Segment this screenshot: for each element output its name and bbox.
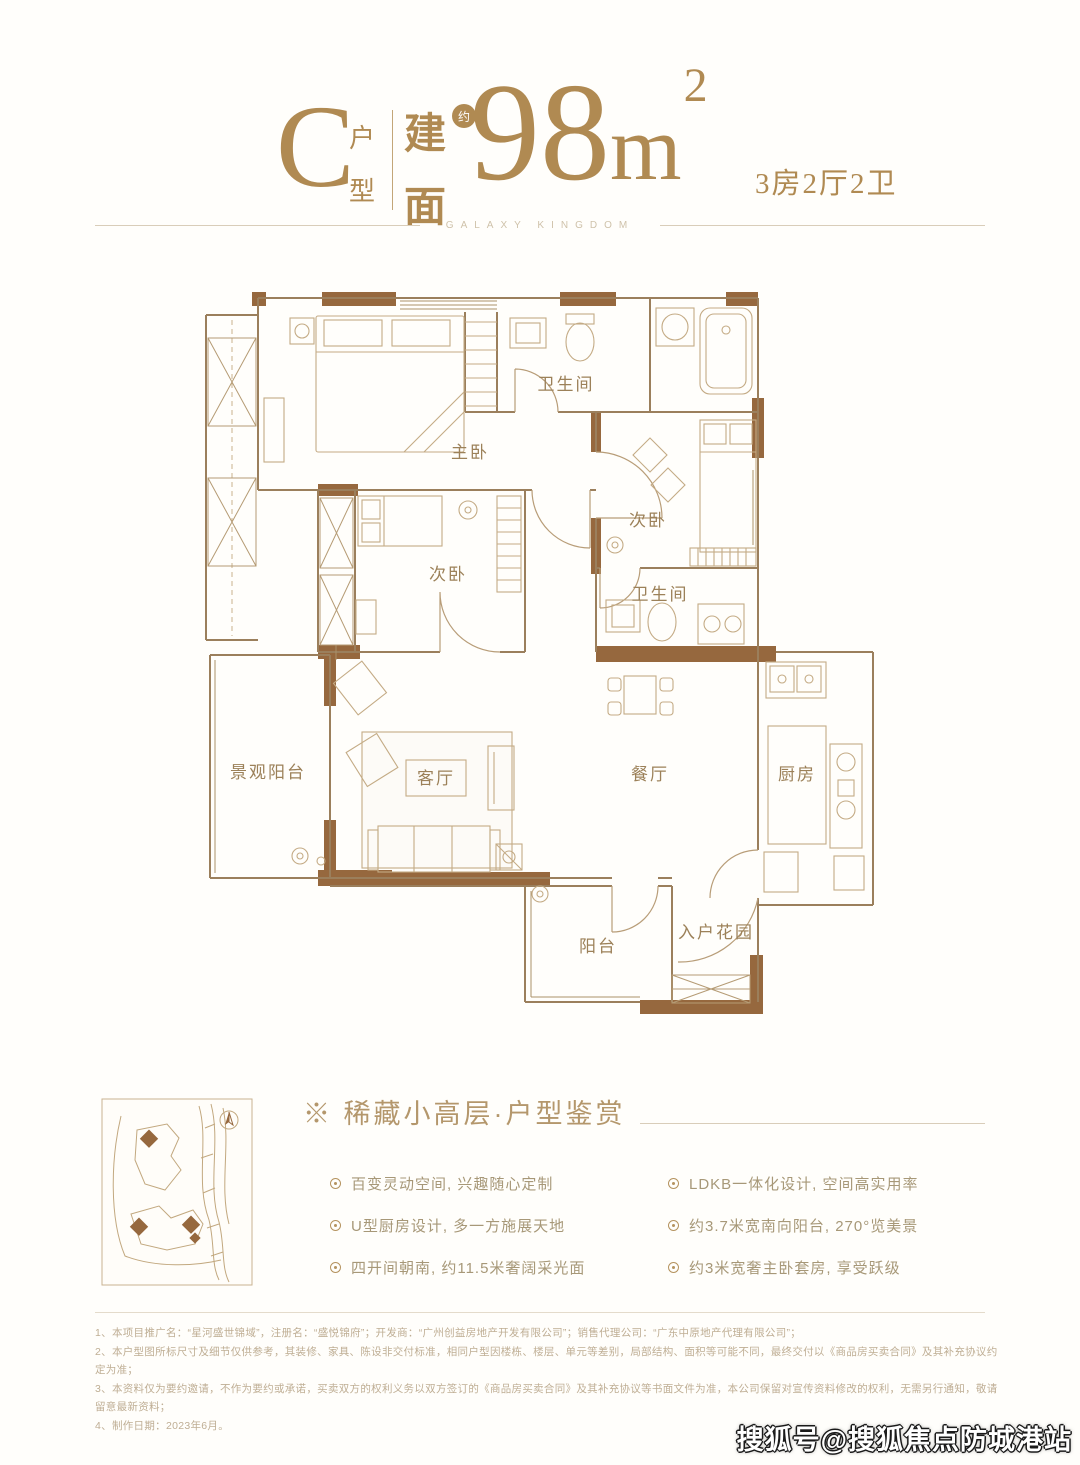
disclaimer-line: 1、本项目推广名：“星河盛世锦域”，注册名：“盛悦锦府”；开发商：“广州创益房地… <box>95 1324 1000 1343</box>
room-label-kitchen: 厨房 <box>778 765 816 784</box>
area-unit: m <box>610 97 682 199</box>
room-label-bathroom-right: 卫生间 <box>632 585 689 604</box>
bay-window-boxes <box>208 338 750 1003</box>
unit-type-label: 户 型 <box>349 118 375 208</box>
features-heading: ※ 稀藏小高层·户型鉴赏 <box>303 1092 626 1131</box>
bullet-icon <box>668 1262 679 1273</box>
room-label-living-room: 客厅 <box>417 769 455 788</box>
watermark: 搜狐号@搜狐焦点防城港站 <box>737 1418 1072 1457</box>
room-label-bathroom-top: 卫生间 <box>538 375 595 394</box>
feature-text: 百变灵动空间, 兴趣随心定制 <box>351 1173 553 1194</box>
room-label-dining-room: 餐厅 <box>631 765 669 784</box>
site-map-svg <box>101 1098 253 1286</box>
room-label-bedroom-right: 次卧 <box>629 511 667 530</box>
header-divider <box>392 110 393 210</box>
unit-type-letter: C <box>276 88 355 206</box>
site-map-thumbnail <box>101 1098 253 1286</box>
feature-text: 四开间朝南, 约11.5米奢阔采光面 <box>351 1257 585 1278</box>
area-label-char: 建 <box>404 100 446 161</box>
area-superscript: 2 <box>684 59 708 112</box>
header: C 户 型 建 面 约 98m2 3房2厅2卫 GALAXY KINGDOM <box>0 0 1080 250</box>
divider-line <box>95 225 420 226</box>
feature-text: U型厨房设计, 多一方施展天地 <box>351 1215 565 1236</box>
features-heading-row: ※ 稀藏小高层·户型鉴赏 <box>303 1092 985 1131</box>
brand-text: GALAXY KINGDOM <box>420 220 660 231</box>
room-label-bedroom-left: 次卧 <box>429 565 467 584</box>
area-label: 建 面 <box>404 100 446 234</box>
feature-item: 百变灵动空间, 兴趣随心定制 <box>330 1162 668 1204</box>
bullet-icon <box>330 1220 341 1231</box>
unit-type-char: 型 <box>349 171 375 208</box>
disclaimer-line: 3、本资料仅为要约邀请，不作为要约或承诺，买卖双方的权利义务以双方签订的《商品房… <box>95 1380 1000 1417</box>
room-label-entry-garden: 入户花园 <box>678 923 754 942</box>
room-labels: 主卧 卫生间 次卧 卫生间 次卧 景观阳台 客厅 餐厅 厨房 阳台 入户花园 <box>230 375 816 956</box>
bullet-icon <box>668 1220 679 1231</box>
bullet-icon <box>330 1262 341 1273</box>
room-label-balcony: 阳台 <box>579 937 617 956</box>
feature-item: 约3米宽奢主卧套房, 享受跃级 <box>668 1246 1010 1288</box>
room-spec: 3房2厅2卫 <box>755 160 898 202</box>
site-map-border <box>102 1099 252 1285</box>
feature-item: 约3.7米宽南向阳台, 270°览美景 <box>668 1204 1010 1246</box>
bullet-icon <box>330 1178 341 1189</box>
disclaimer-rule <box>95 1312 985 1313</box>
feature-text: LDKB一体化设计, 空间高实用率 <box>689 1173 919 1194</box>
brand-divider: GALAXY KINGDOM <box>95 220 985 231</box>
feature-text: 约3米宽奢主卧套房, 享受跃级 <box>689 1257 901 1278</box>
disclaimer-line: 2、本户型图所标尺寸及细节仅供参考，其装修、家具、陈设非交付标准，相同户型因楼栋… <box>95 1343 1000 1380</box>
heading-rule <box>640 1123 986 1124</box>
feature-item: 四开间朝南, 约11.5米奢阔采光面 <box>330 1246 668 1288</box>
feature-item: U型厨房设计, 多一方施展天地 <box>330 1204 668 1246</box>
area-number: 98 <box>470 55 610 210</box>
feature-item: LDKB一体化设计, 空间高实用率 <box>668 1162 1010 1204</box>
bullet-icon <box>668 1178 679 1189</box>
floor-plan-svg: 主卧 卫生间 次卧 卫生间 次卧 景观阳台 客厅 餐厅 厨房 阳台 入户花园 <box>0 280 1080 1050</box>
room-label-master-bedroom: 主卧 <box>451 443 489 462</box>
area-value: 98m2 <box>470 62 708 203</box>
divider-line <box>660 225 985 226</box>
features-list: 百变灵动空间, 兴趣随心定制 LDKB一体化设计, 空间高实用率 U型厨房设计,… <box>330 1162 1010 1288</box>
feature-text: 约3.7米宽南向阳台, 270°览美景 <box>689 1215 918 1236</box>
unit-type-char: 户 <box>349 118 375 155</box>
floorplan-poster: C 户 型 建 面 约 98m2 3房2厅2卫 GALAXY KINGDOM <box>0 0 1080 1465</box>
floor-plan: 主卧 卫生间 次卧 卫生间 次卧 景观阳台 客厅 餐厅 厨房 阳台 入户花园 <box>0 280 1080 1050</box>
room-label-view-balcony: 景观阳台 <box>230 763 306 782</box>
